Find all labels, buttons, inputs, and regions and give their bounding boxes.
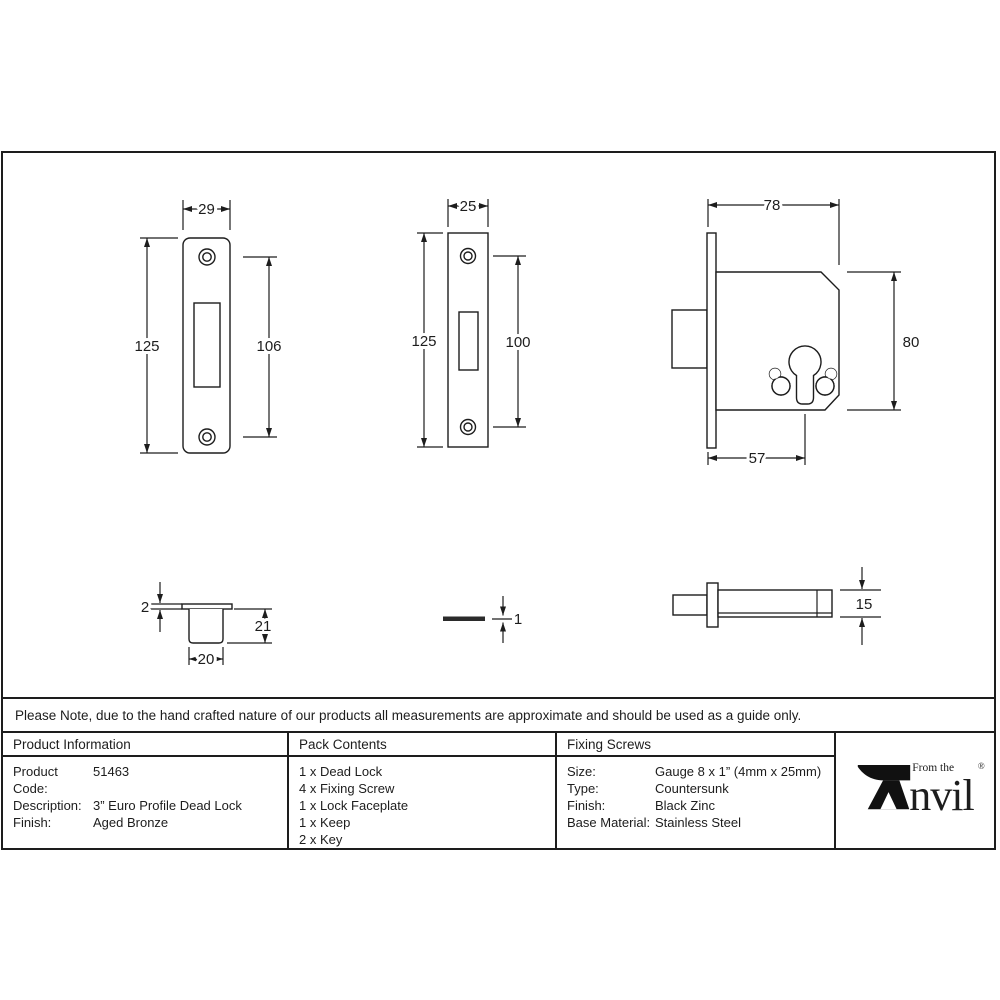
list-item: 1 x Keep	[299, 814, 547, 831]
screw-hole-icon	[461, 249, 476, 264]
size-value: Gauge 8 x 1” (4mm x 25mm)	[655, 763, 826, 780]
brand-name: nvil	[909, 779, 973, 812]
dim-keep-height: 125	[134, 338, 159, 355]
list-item: 2 x Key	[299, 831, 547, 848]
note-bar: Please Note, due to the hand crafted nat…	[3, 697, 994, 731]
table-row: Type: Countersunk	[567, 780, 826, 797]
product-code-value: 51463	[93, 763, 279, 797]
table-row: Size: Gauge 8 x 1” (4mm x 25mm)	[567, 763, 826, 780]
faceplate-slot	[459, 312, 478, 370]
note-text: Please Note, due to the hand crafted nat…	[15, 708, 801, 723]
dim-faceplate-width: 25	[460, 198, 477, 215]
faceplate-side-bar	[707, 583, 718, 627]
dim-faceplate-height: 125	[411, 333, 436, 350]
dim-case-depth: 78	[764, 197, 781, 214]
fixing-screws-column: Fixing Screws Size: Gauge 8 x 1” (4mm x …	[555, 733, 834, 848]
from-the-anvil-logo: From the nvil ®	[856, 757, 973, 825]
bolt-side	[673, 595, 707, 615]
screw-finish-value: Black Zinc	[655, 797, 826, 814]
drawing-sheet-frame: 29 125 106 25	[1, 151, 996, 850]
table-row: Finish: Aged Bronze	[13, 814, 279, 831]
screw-hole-icon	[199, 429, 215, 445]
base-material-value: Stainless Steel	[655, 814, 826, 831]
keep-faceplate-front-drawing: 29 125 106	[134, 200, 281, 453]
size-label: Size:	[567, 763, 655, 780]
anvil-icon	[856, 757, 912, 811]
description-label: Description:	[13, 797, 93, 814]
bolt-outline	[672, 310, 707, 368]
keep-cup	[189, 609, 223, 643]
dim-backset: 57	[749, 450, 766, 467]
screw-finish-label: Finish:	[567, 797, 655, 814]
pack-contents-column: Pack Contents 1 x Dead Lock 4 x Fixing S…	[287, 733, 555, 848]
lock-body-side-drawing: 15	[673, 567, 881, 645]
type-value: Countersunk	[655, 780, 826, 797]
dim-case-height: 80	[903, 334, 920, 351]
table-row: Description: 3” Euro Profile Dead Lock	[13, 797, 279, 814]
finish-value: Aged Bronze	[93, 814, 279, 831]
product-information-column: Product Information Product Code: 51463 …	[3, 733, 287, 848]
lock-faceplate-front-drawing: 25 125 100	[411, 198, 530, 447]
keep-slot	[194, 303, 220, 387]
dim-keep-width-bottom: 20	[198, 651, 215, 668]
dim-keep-depth: 21	[255, 618, 272, 635]
screw-hole-icon	[199, 249, 215, 265]
keep-flange	[182, 604, 232, 609]
registered-mark: ®	[978, 761, 985, 771]
pack-contents-header: Pack Contents	[289, 733, 555, 757]
list-item: 1 x Dead Lock	[299, 763, 547, 780]
finish-label: Finish:	[13, 814, 93, 831]
technical-drawings-area: 29 125 106 25	[3, 153, 994, 697]
brand-wordmark: From the nvil ®	[909, 777, 973, 811]
table-row: Finish: Black Zinc	[567, 797, 826, 814]
list-item: 4 x Fixing Screw	[299, 780, 547, 797]
dim-faceplate-hole-spacing: 100	[505, 334, 530, 351]
list-item: 1 x Lock Faceplate	[299, 797, 547, 814]
table-row: Product Code: 51463	[13, 763, 279, 797]
dim-keep-width: 29	[198, 201, 215, 218]
base-material-label: Base Material:	[567, 814, 655, 831]
type-label: Type:	[567, 780, 655, 797]
lock-body-front-drawing: 78 80 57	[672, 197, 919, 467]
brand-logo-cell: From the nvil ®	[834, 733, 994, 848]
faceplate-edge-bar	[443, 617, 485, 622]
technical-drawings-svg: 29 125 106 25	[3, 153, 994, 697]
product-code-label: Product Code:	[13, 763, 93, 797]
dim-faceplate-thickness: 1	[514, 611, 522, 628]
keep-side-drawing: 2 21 20	[141, 582, 272, 668]
screw-hole-icon	[461, 420, 476, 435]
dim-keep-flange: 2	[141, 599, 149, 616]
dim-lock-thickness: 15	[856, 596, 873, 613]
description-value: 3” Euro Profile Dead Lock	[93, 797, 279, 814]
faceplate-side-drawing: 1	[443, 596, 522, 643]
lock-faceplate-edge	[707, 233, 716, 448]
table-row: Base Material: Stainless Steel	[567, 814, 826, 831]
info-table: Product Information Product Code: 51463 …	[3, 731, 994, 848]
product-information-header: Product Information	[3, 733, 287, 757]
dim-keep-hole-spacing: 106	[256, 338, 281, 355]
fixing-screws-header: Fixing Screws	[557, 733, 834, 757]
